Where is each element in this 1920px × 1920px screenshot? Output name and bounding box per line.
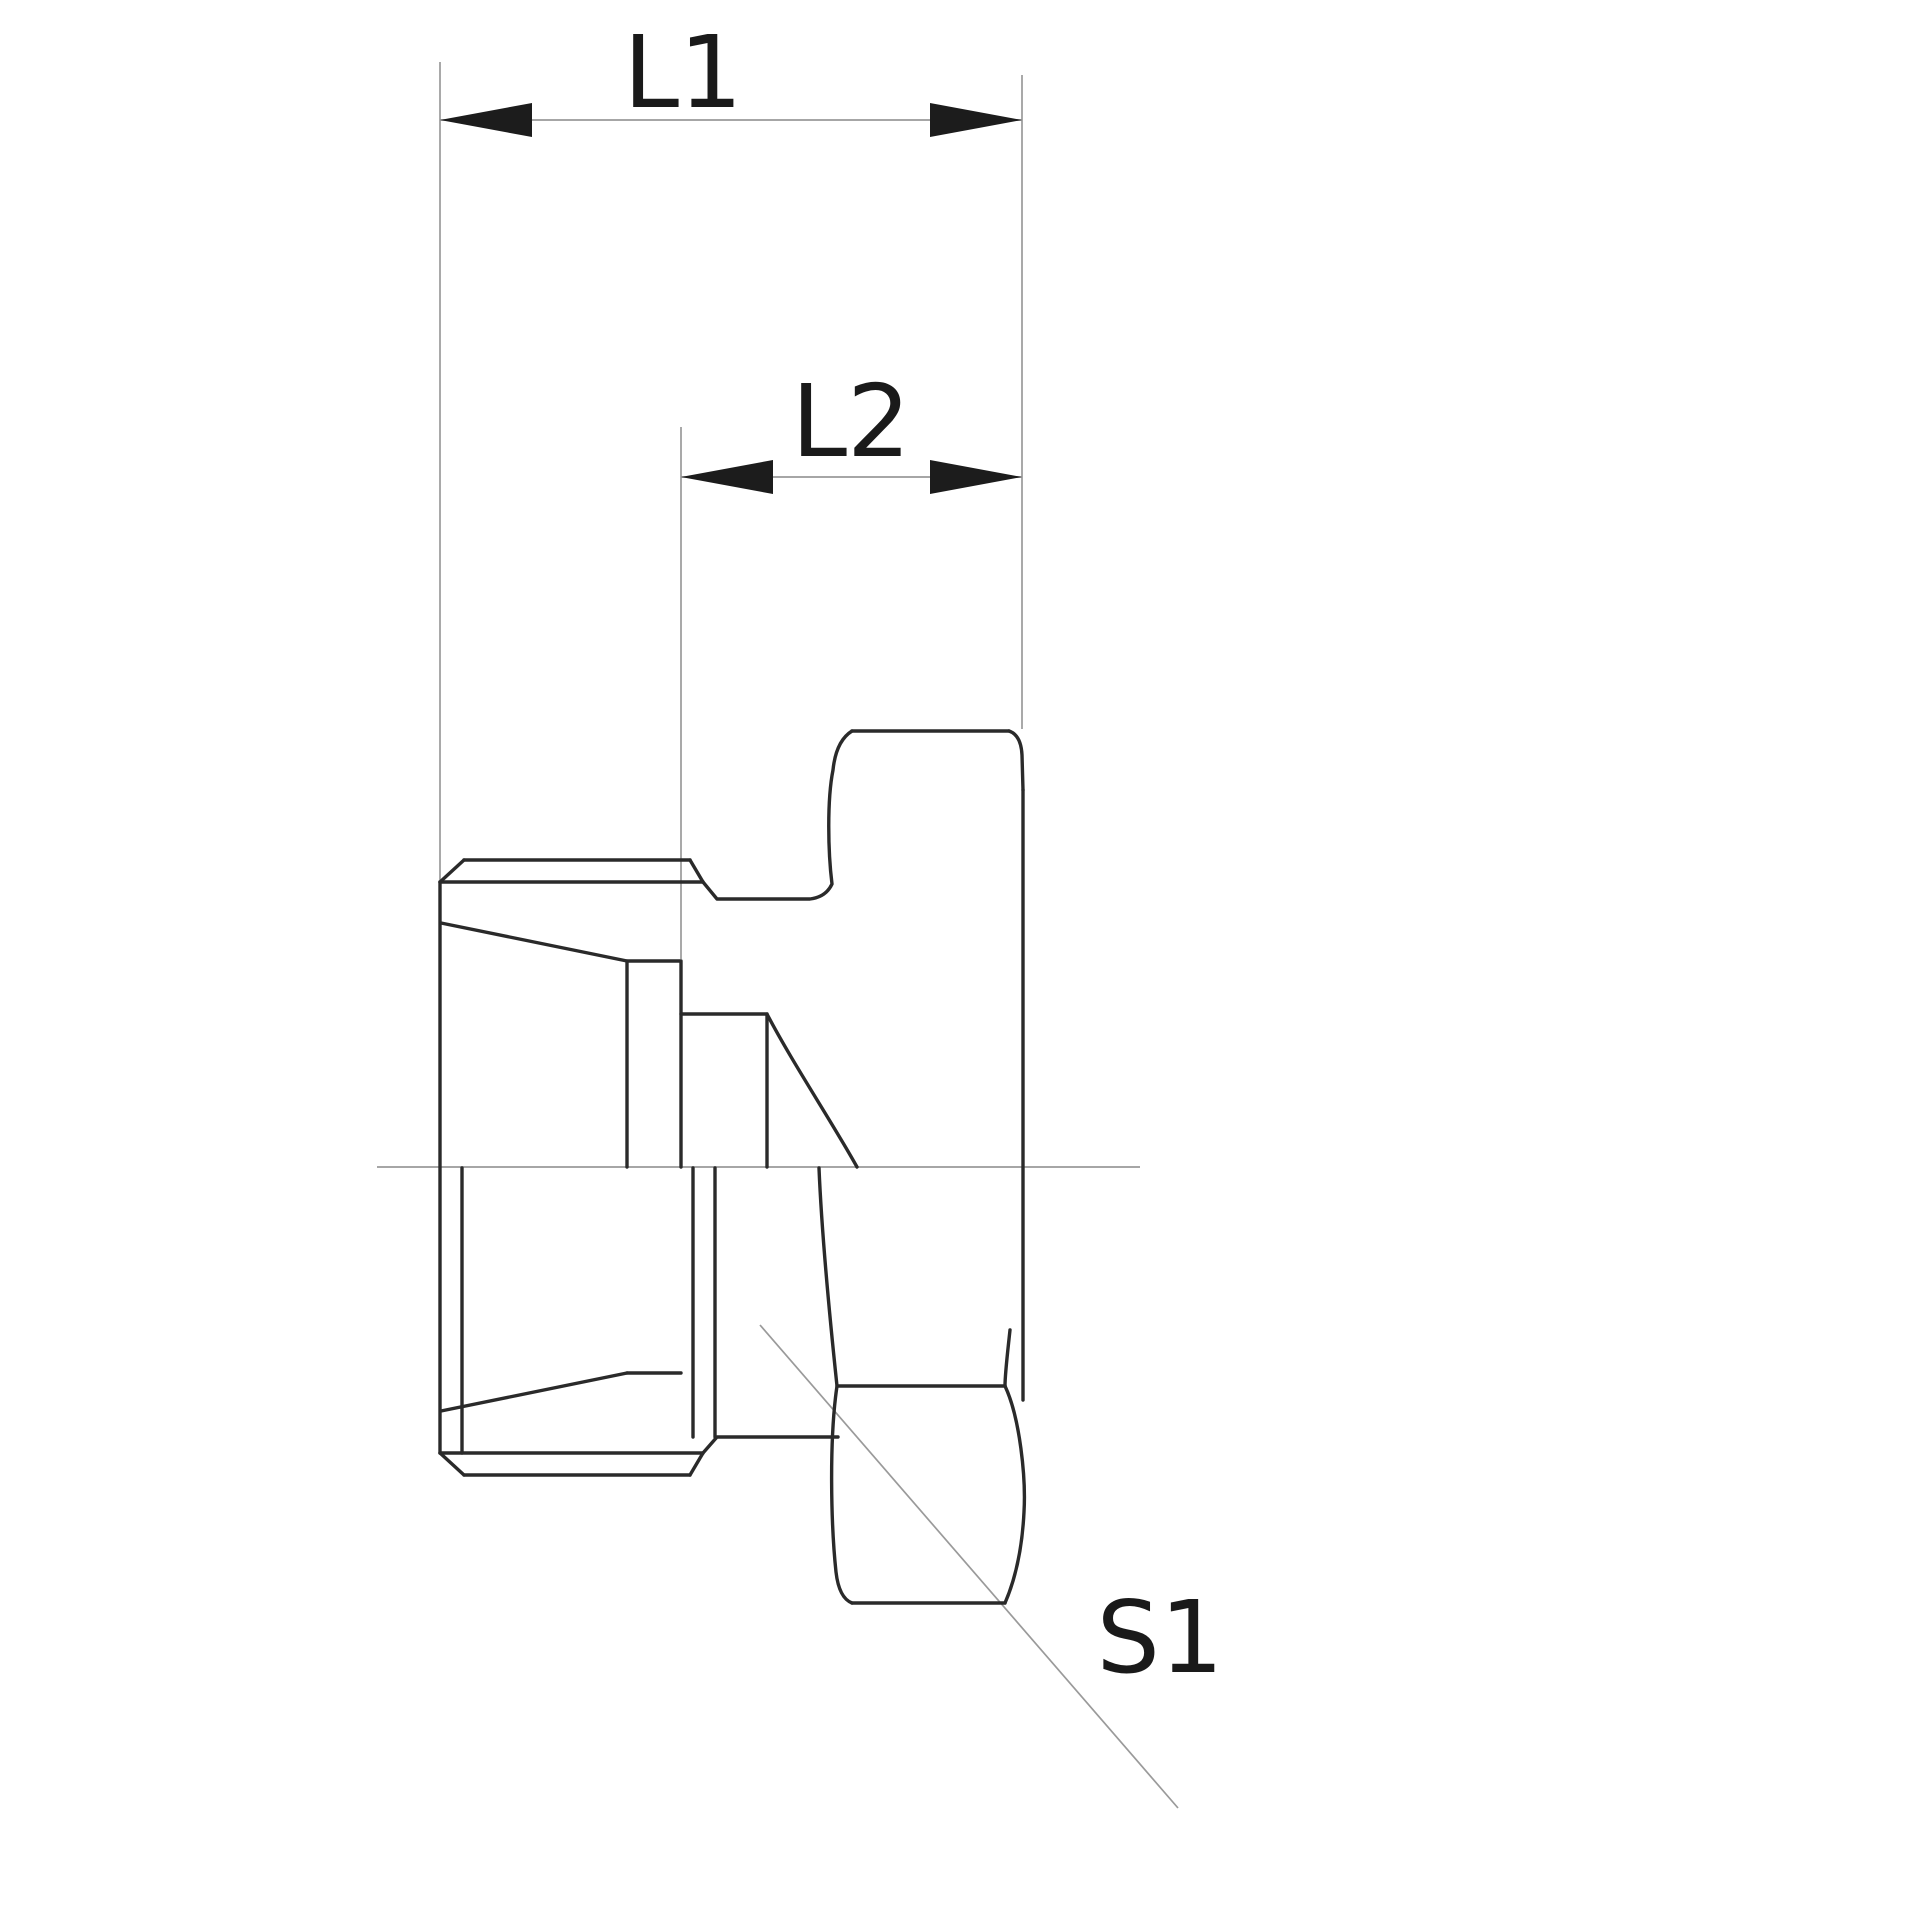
- engineering-drawing-canvas: L1 L2 S1: [0, 0, 1920, 1920]
- l1-arrow-left-icon: [440, 103, 532, 137]
- stud-chamfer-bottom: [440, 1453, 464, 1475]
- engineering-drawing-page: L1 L2 S1: [0, 0, 1920, 1920]
- thread-taper-bottom: [441, 1373, 627, 1411]
- l1-arrow-right-icon: [930, 103, 1022, 137]
- stud-chamfer-top: [440, 860, 464, 882]
- hex-neck-and-left-edge-top: [703, 731, 852, 899]
- seat-line-top: [681, 1014, 767, 1167]
- thread-taper-top: [441, 923, 627, 961]
- thread-step-top: [627, 961, 681, 1167]
- l2-arrow-left-icon: [681, 460, 773, 494]
- hex-inner-edge-bottom: [1005, 1330, 1010, 1386]
- seat-cone-top: [767, 1014, 857, 1167]
- stud-runout-top: [690, 860, 703, 882]
- hex-top-right-chamfer: [1009, 731, 1023, 790]
- dim-label-s1: S1: [1096, 1579, 1223, 1696]
- hex-neck-bottom: [703, 1437, 838, 1453]
- l2-arrow-right-icon: [930, 460, 1022, 494]
- dim-label-l2: L2: [791, 363, 910, 480]
- s1-leader-line: [760, 1325, 1178, 1808]
- hex-bottom-right-arc: [1005, 1386, 1024, 1603]
- stud-runout-bottom: [690, 1453, 703, 1475]
- dimension-arrows-group: [440, 103, 1022, 494]
- dim-label-l1: L1: [623, 14, 742, 131]
